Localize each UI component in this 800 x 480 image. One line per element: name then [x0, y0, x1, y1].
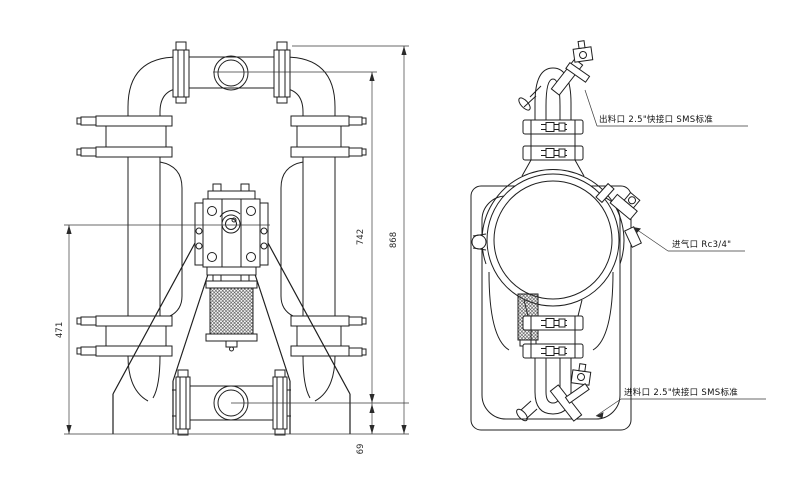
outlet-port: [214, 56, 248, 90]
upper-flange-right: [291, 116, 366, 157]
inlet-port-callout: 进料口 2.5"快接口 SMS标准: [596, 387, 766, 419]
bottom-clamp-right: [273, 370, 287, 435]
pump-dimension-drawing: 742 868 471 69: [0, 0, 800, 480]
air-valve-block: [195, 184, 268, 281]
dimension-label-868: 868: [389, 232, 399, 248]
top-clamp-left: [173, 42, 189, 103]
band-hinge: [472, 234, 486, 250]
pump-chamber: [472, 170, 624, 306]
suction-elbow: [515, 358, 592, 423]
front-view: [77, 42, 366, 435]
leader-line-inlet: [596, 399, 766, 416]
dimension-label-69: 69: [356, 444, 366, 455]
dimension-471: 471: [55, 225, 72, 434]
discharge-elbow: [517, 40, 593, 120]
bottom-clamp-left: [176, 370, 190, 435]
inlet-port-label: 进料口 2.5"快接口 SMS标准: [624, 387, 738, 398]
top-manifold: [128, 57, 335, 117]
lower-flange-left: [77, 316, 172, 356]
bottom-manifold: [172, 370, 291, 435]
upper-tri-clamp-2: [523, 146, 583, 160]
lower-flange-right: [291, 316, 366, 356]
dimension-label-471: 471: [55, 322, 65, 338]
technical-drawing: 742 868 471 69: [0, 0, 800, 480]
outlet-port-label: 出料口 2.5"快接口 SMS标准: [599, 114, 713, 125]
muffler: [206, 281, 257, 351]
lower-tri-clamp-2: [523, 344, 583, 358]
spool-1: [531, 134, 575, 146]
lower-tri-clamp-1: [523, 316, 583, 330]
air-inlet-callout: 进气口 Rc3/4": [633, 227, 745, 251]
top-clamp-right: [274, 42, 290, 103]
dimension-label-742: 742: [356, 229, 366, 245]
dimension-868: 868: [389, 46, 407, 434]
upper-flange-left: [77, 116, 172, 157]
dimension-69: 69: [356, 403, 375, 454]
elbow-tbolt-bottom: [565, 363, 591, 403]
outlet-port-callout: 出料口 2.5"快接口 SMS标准: [585, 90, 748, 126]
upper-tri-clamp-1: [523, 120, 583, 134]
side-view: 出料口 2.5"快接口 SMS标准 进气口 Rc3/4" 进料口 2.5"快接口…: [471, 40, 766, 430]
bottom-funnels: [128, 356, 335, 401]
air-inlet-label: 进气口 Rc3/4": [672, 239, 731, 250]
